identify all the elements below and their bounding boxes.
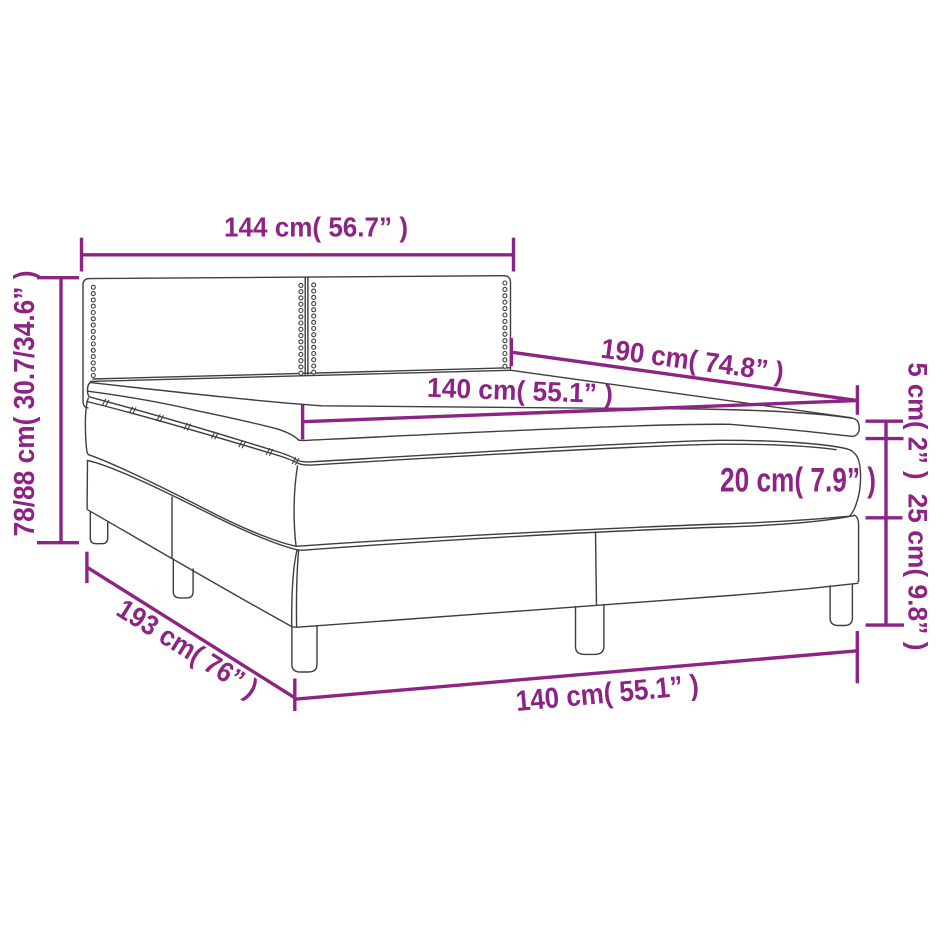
svg-text:78/88 cm( 30.7/34.6” ): 78/88 cm( 30.7/34.6” ) xyxy=(9,271,41,537)
svg-text:20 cm( 7.9” ): 20 cm( 7.9” ) xyxy=(720,462,876,500)
svg-text:140 cm( 55.1” ): 140 cm( 55.1” ) xyxy=(427,372,614,409)
svg-text:144 cm( 56.7” ): 144 cm( 56.7” ) xyxy=(224,212,408,243)
svg-text:25 cm( 9.8” ): 25 cm( 9.8” ) xyxy=(903,494,933,651)
svg-text:5 cm( 2” ): 5 cm( 2” ) xyxy=(903,363,933,480)
